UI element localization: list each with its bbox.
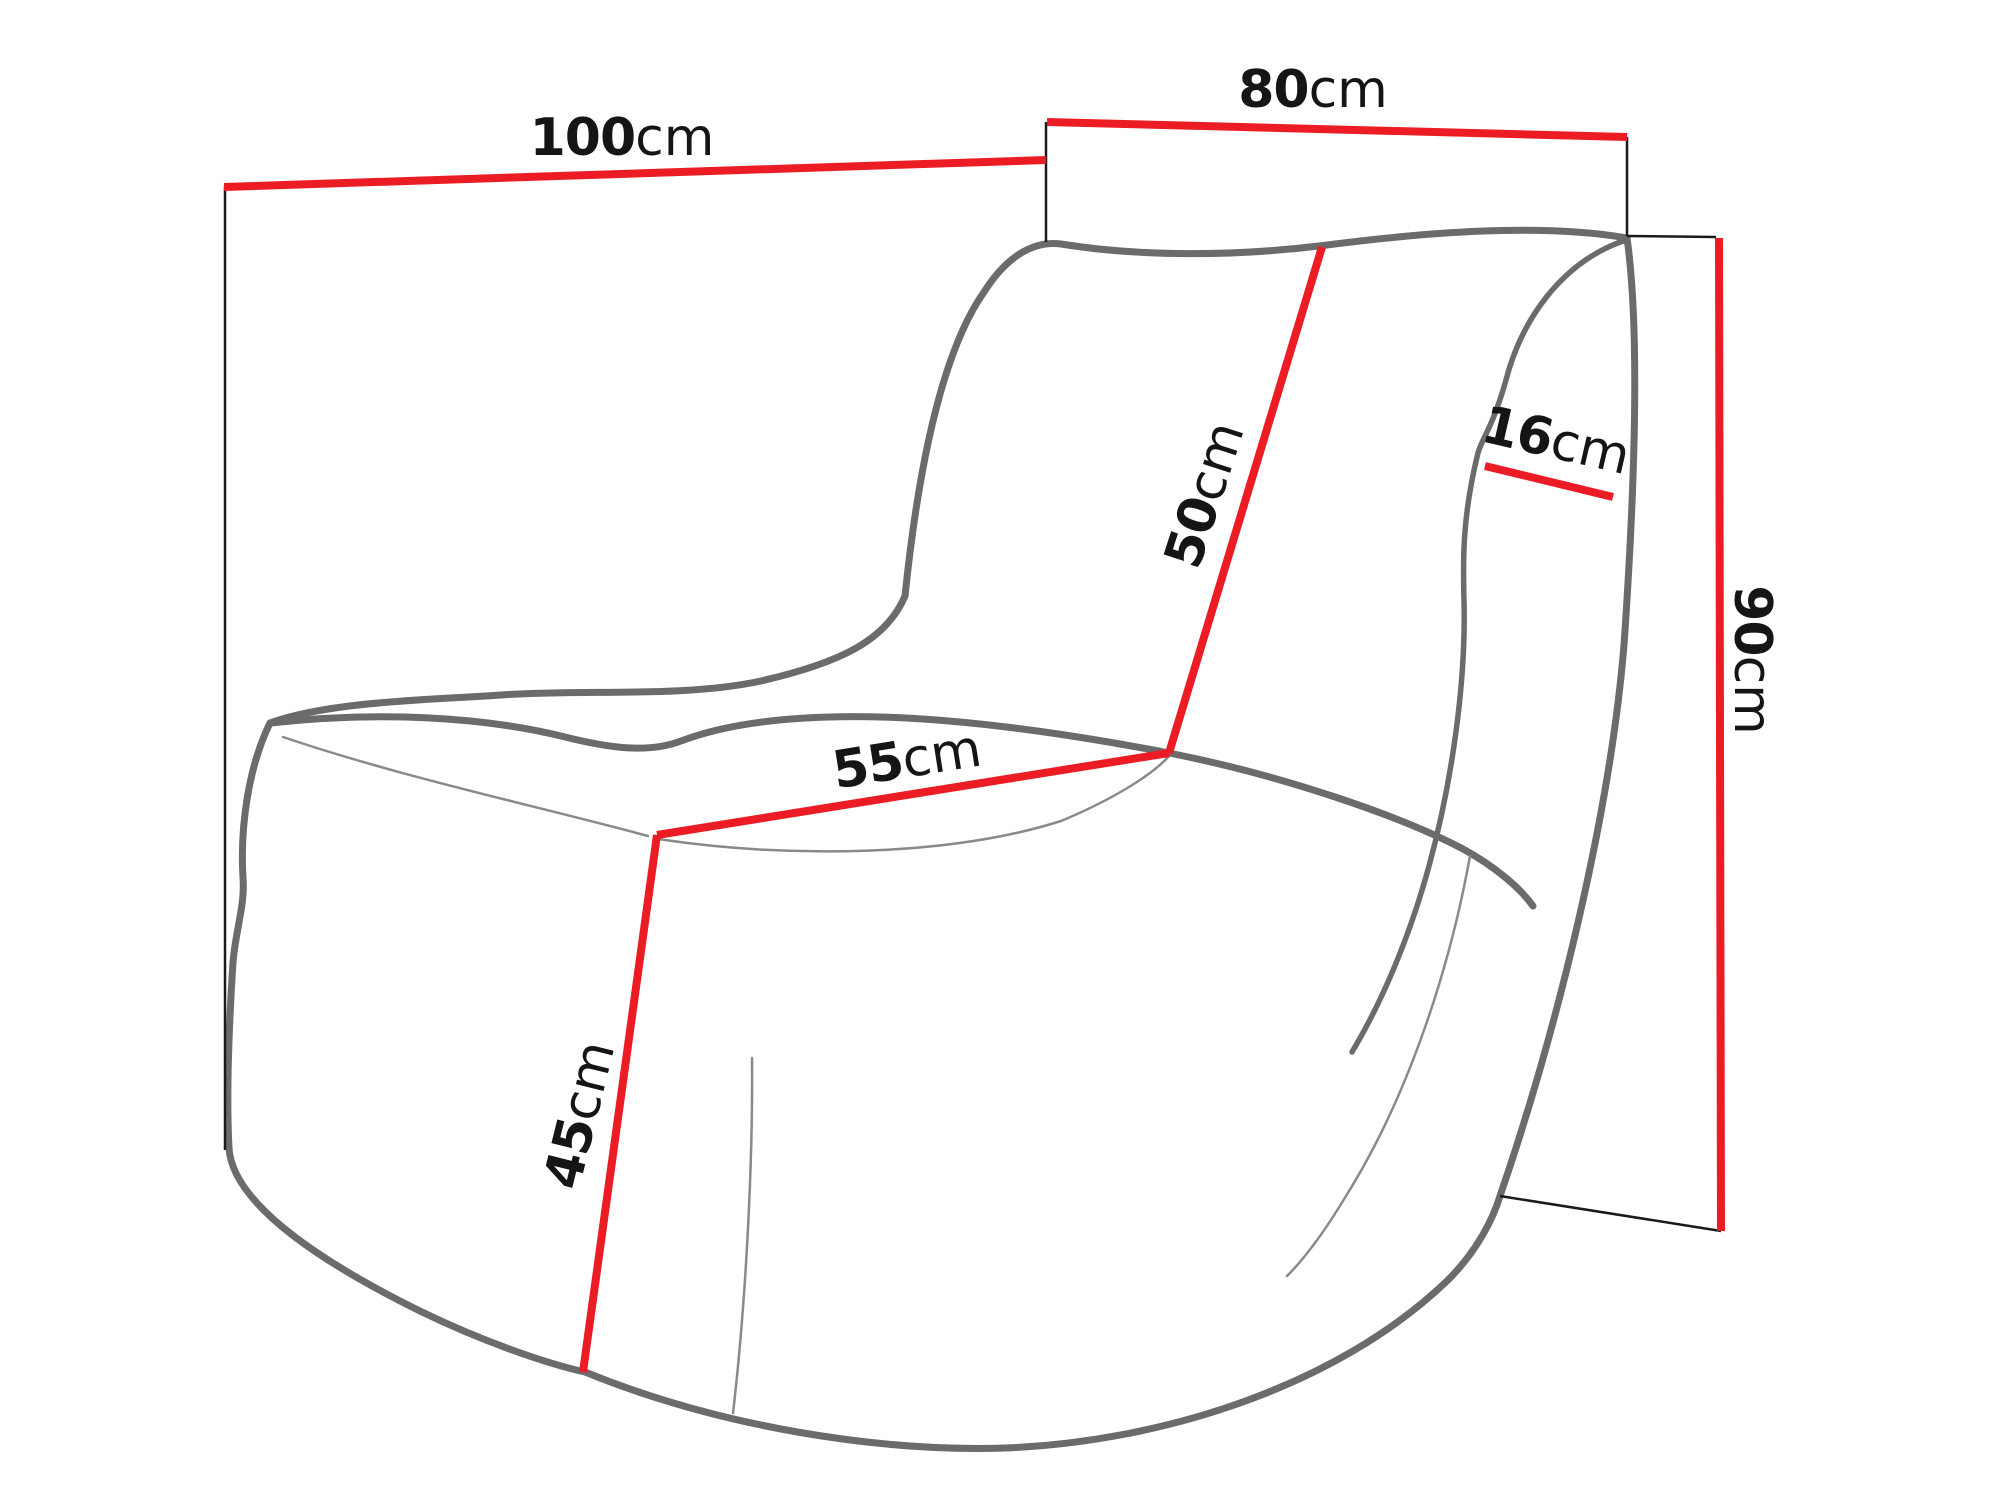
label-90cm: 90cm [1726,585,1778,735]
dimension-line-80cm [1047,122,1627,137]
dimension-line-90cm [1719,238,1721,1231]
label-100cm: 100cm [530,112,715,164]
chair-outline [228,230,1635,1448]
chair-drawing [228,230,1635,1448]
label-100cm-unit: cm [635,108,714,168]
dimension-diagram: 100cm 80cm 90cm 50cm 55cm 45cm 16cm [0,0,2000,1500]
label-90cm-value: 90 [1722,585,1782,655]
label-100cm-value: 100 [530,108,636,168]
label-90cm-unit: cm [1722,656,1782,735]
label-55cm-value: 55 [828,731,907,801]
label-80cm: 80cm [1238,64,1388,116]
label-55cm-unit: cm [898,719,986,791]
label-80cm-unit: cm [1309,60,1388,120]
label-80cm-value: 80 [1238,60,1308,120]
extension-line-right-h [1627,236,1716,237]
extension-line-bottom-right [1500,1196,1721,1231]
diagram-canvas [0,0,2000,1500]
